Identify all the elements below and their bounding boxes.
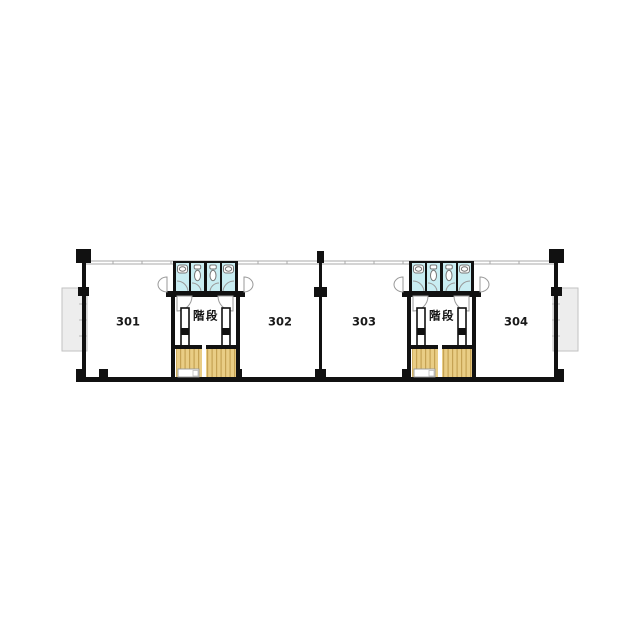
column <box>549 249 564 263</box>
column <box>76 369 85 379</box>
column <box>99 369 108 378</box>
building-outline <box>76 249 564 382</box>
column <box>315 369 326 378</box>
column <box>78 287 89 296</box>
left-wall <box>82 252 86 378</box>
column <box>555 369 564 379</box>
room-304-label: 304 <box>504 315 528 329</box>
column <box>317 251 324 263</box>
column <box>76 249 91 263</box>
column <box>551 287 562 296</box>
room-302-label: 302 <box>268 315 292 329</box>
stair-label-unit-2: 階段 <box>429 309 455 323</box>
right-wall <box>554 252 558 378</box>
stair-label-unit-1: 階段 <box>193 309 219 323</box>
room-303-label: 303 <box>352 315 376 329</box>
column <box>314 287 327 297</box>
floor-plan-canvas: 301 302 303 304 階段 階段 <box>0 0 639 640</box>
room-301-label: 301 <box>116 315 140 329</box>
floor-plan-page: 301 302 303 304 階段 階段 <box>0 0 639 640</box>
party-wall <box>314 251 327 378</box>
